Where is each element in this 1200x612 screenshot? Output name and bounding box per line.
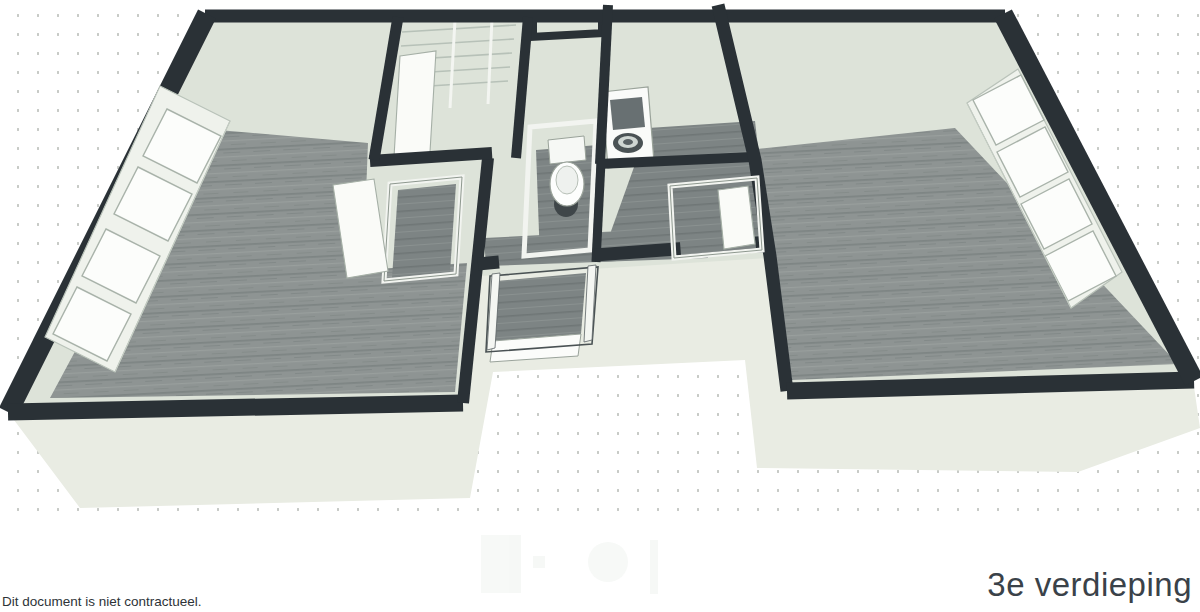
closet-door-leaf bbox=[394, 51, 436, 157]
floorplan-3d-render bbox=[0, 0, 1200, 612]
corridor-south-wall bbox=[598, 157, 753, 164]
door-leaf bbox=[718, 186, 755, 249]
floorplan-page: Dit document is niet contractueel. 3e ve… bbox=[0, 0, 1200, 612]
left-room-partition bbox=[370, 153, 492, 161]
wc-door-wall bbox=[596, 162, 601, 262]
watermark-logo bbox=[481, 535, 658, 594]
right-wing-south-wall bbox=[787, 380, 1194, 391]
washbasin-icon bbox=[602, 87, 654, 168]
left-wing-south-wall bbox=[8, 403, 463, 412]
floor-title: 3e verdieping bbox=[987, 566, 1192, 604]
hall-south-wall-left bbox=[478, 262, 499, 264]
disclaimer-text: Dit document is niet contractueel. bbox=[2, 594, 202, 609]
